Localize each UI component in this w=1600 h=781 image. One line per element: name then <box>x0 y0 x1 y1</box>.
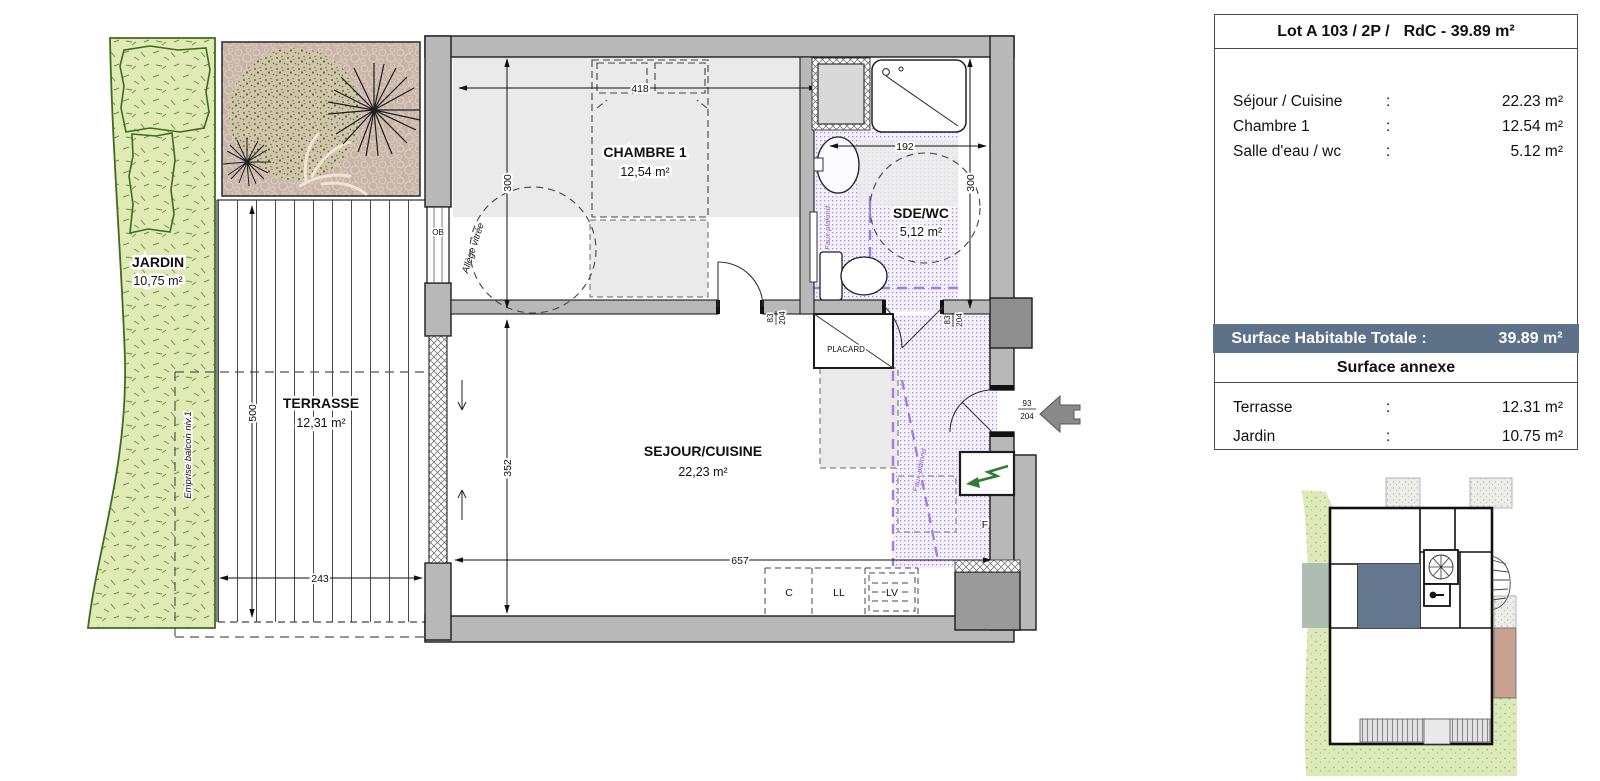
dim-sde-depth: 300 <box>965 59 977 308</box>
entrance-arrow <box>1040 396 1080 432</box>
room-area-row: Salle d'eau / wc : 5.12 m² <box>1215 139 1577 164</box>
keyplan-spiral-stair <box>1424 550 1458 584</box>
total-surface-label: Surface Habitable Totale : <box>1231 330 1426 348</box>
svg-text:204: 204 <box>778 311 787 325</box>
faux-plafond-label-1: Faux-plafond <box>823 205 832 250</box>
svg-text:300: 300 <box>502 174 514 192</box>
svg-text:500: 500 <box>247 404 259 422</box>
annexe-row: Jardin : 10.75 m² <box>1215 422 1577 451</box>
annexe-list: Terrasse : 12.31 m² Jardin : 10.75 m² <box>1215 393 1577 451</box>
entrance-marker: 93 204 <box>1018 396 1080 432</box>
total-surface-value: 39.89 m² <box>1427 330 1563 348</box>
svg-text:300: 300 <box>965 174 977 192</box>
svg-text:657: 657 <box>731 555 749 567</box>
sejour-area: 22,23 m² <box>678 465 727 479</box>
svg-text:204: 204 <box>1020 412 1034 421</box>
chambre-door <box>718 262 763 307</box>
planted-bed <box>222 42 420 196</box>
annexe-header: Surface annexe <box>1215 353 1577 383</box>
annexe-row: Terrasse : 12.31 m² <box>1215 393 1577 422</box>
svg-text:192: 192 <box>896 141 914 153</box>
terrasse-area: 12,31 m² <box>296 416 345 430</box>
svg-text:204: 204 <box>955 313 964 327</box>
windows: OB Allège vitrée <box>427 207 487 563</box>
sejour-label: SEJOUR/CUISINE <box>644 443 762 459</box>
keyplan-tan-strip <box>1494 628 1516 698</box>
placard: PLACARD <box>814 314 893 368</box>
chambre-area: 12,54 m² <box>620 165 669 179</box>
ob-label: OB <box>432 228 444 237</box>
meter-niche <box>960 452 1014 495</box>
appliance-c: C <box>785 587 793 599</box>
sde-area: 5,12 m² <box>900 225 942 239</box>
bay-window <box>429 336 447 563</box>
wall-hatch-strip <box>955 560 1020 572</box>
svg-text:418: 418 <box>631 83 649 95</box>
appliance-ll: LL <box>833 587 845 599</box>
emprise-label: Emprise balcon niv.1 <box>183 411 194 498</box>
svg-text:243: 243 <box>311 573 329 585</box>
sde-label: SDE/WC <box>893 205 949 221</box>
total-surface-band: Surface Habitable Totale : 39.89 m² <box>1213 324 1578 353</box>
svg-text:93: 93 <box>1023 399 1032 408</box>
lot-title: Lot A 103 / 2P / <box>1277 23 1389 41</box>
info-panel-header: Lot A 103 / 2P / RdC - 39.89 m² <box>1215 15 1577 49</box>
jardin-area: 10,75 m² <box>133 274 182 288</box>
info-panel: Lot A 103 / 2P / RdC - 39.89 m² Séjour /… <box>1214 14 1578 450</box>
svg-text:83: 83 <box>766 313 775 322</box>
room-area-row: Chambre 1 : 12.54 m² <box>1215 114 1577 139</box>
appliance-f: F <box>982 519 988 531</box>
keyplan-unit-highlight <box>1358 564 1420 628</box>
towel-radiator <box>810 212 817 282</box>
chambre-label: CHAMBRE 1 <box>603 144 686 160</box>
jardin-label: JARDIN <box>132 254 184 270</box>
svg-text:83: 83 <box>943 315 952 324</box>
room-area-row: Séjour / Cuisine : 22.23 m² <box>1215 89 1577 114</box>
terrasse-label: TERRASSE <box>283 395 359 411</box>
garden-area: JARDIN 10,75 m² <box>88 38 215 628</box>
lot-floor-area: RdC - 39.89 m² <box>1404 23 1515 41</box>
room-areas-list: Séjour / Cuisine : 22.23 m² Chambre 1 : … <box>1215 89 1577 164</box>
placard-label: PLACARD <box>827 345 865 354</box>
keyplan-utility <box>1424 584 1450 606</box>
entrance-door-size: 93 204 <box>1018 399 1036 421</box>
key-plan <box>1302 478 1517 776</box>
appliance-lv: LV <box>886 587 898 599</box>
shower <box>872 60 966 132</box>
dim-sejour-depth: 352 <box>502 320 514 613</box>
ob-window <box>427 207 449 283</box>
svg-text:352: 352 <box>502 459 514 477</box>
